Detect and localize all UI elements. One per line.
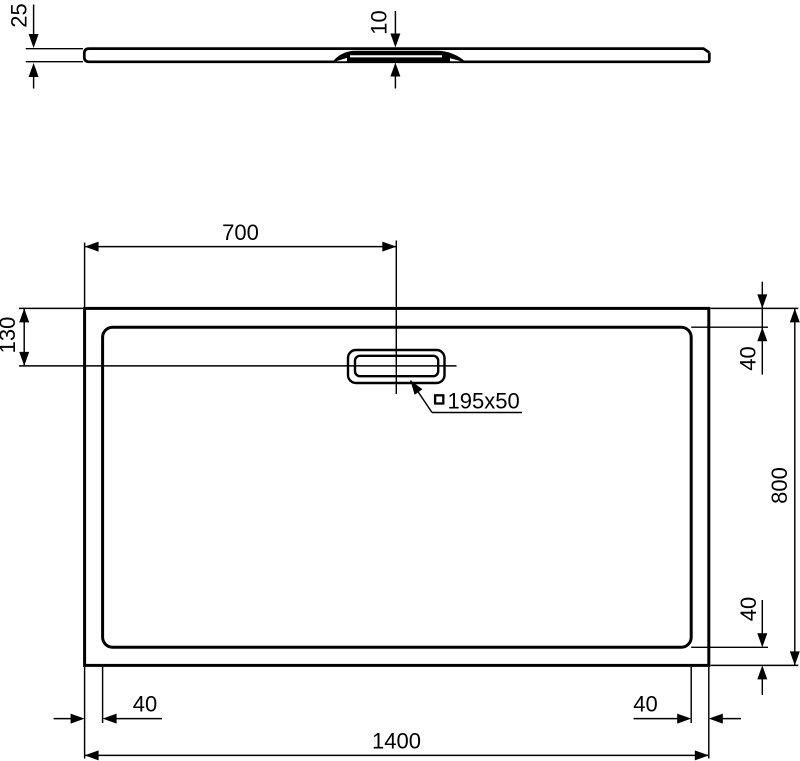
svg-text:195x50: 195x50 (448, 388, 520, 413)
svg-text:1400: 1400 (372, 728, 421, 753)
svg-text:130: 130 (0, 317, 20, 354)
svg-text:40: 40 (736, 597, 761, 621)
svg-text:40: 40 (633, 692, 657, 717)
svg-text:800: 800 (767, 467, 792, 504)
svg-text:40: 40 (133, 692, 157, 717)
svg-text:25: 25 (7, 3, 32, 27)
svg-text:700: 700 (222, 220, 259, 245)
svg-text:40: 40 (736, 346, 761, 370)
svg-text:10: 10 (367, 10, 392, 34)
